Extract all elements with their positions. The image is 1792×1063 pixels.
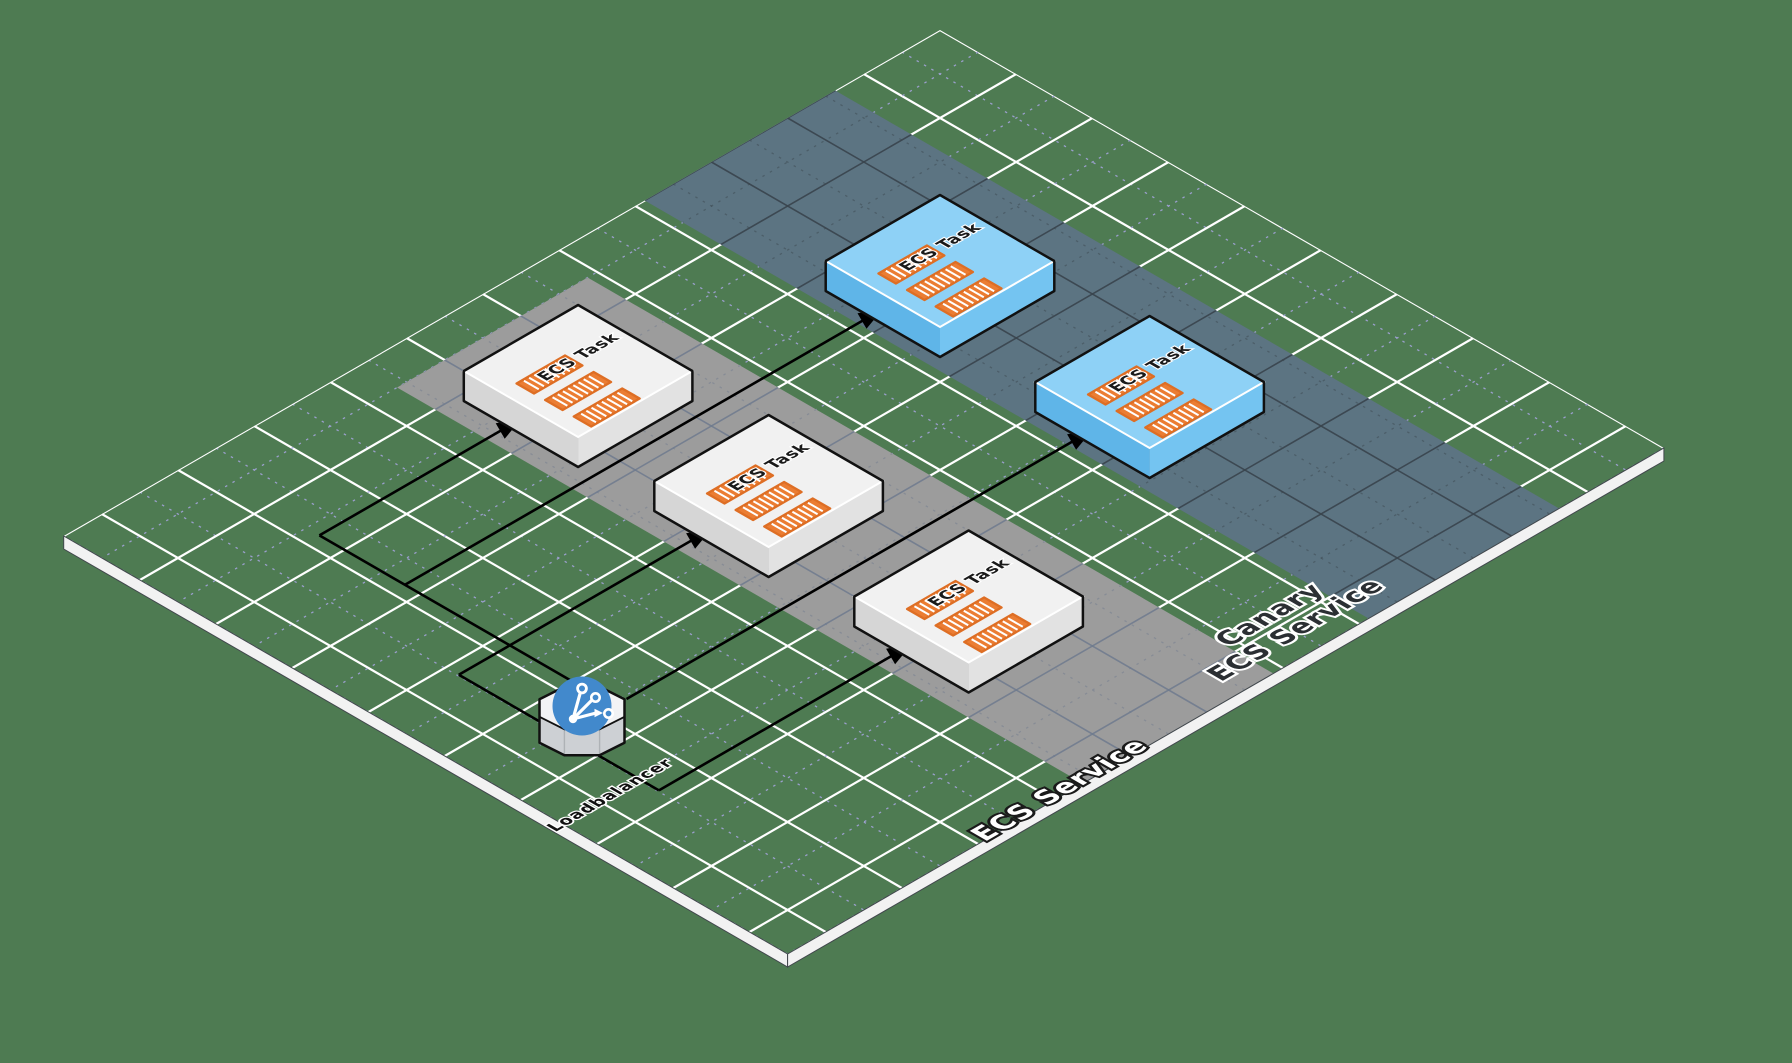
isometric-ecs-diagram: ECS TaskECS TaskECS TaskECS TaskECS Task… (0, 0, 1792, 1063)
diagram-canvas: ECS TaskECS TaskECS TaskECS TaskECS Task… (0, 0, 1792, 1063)
